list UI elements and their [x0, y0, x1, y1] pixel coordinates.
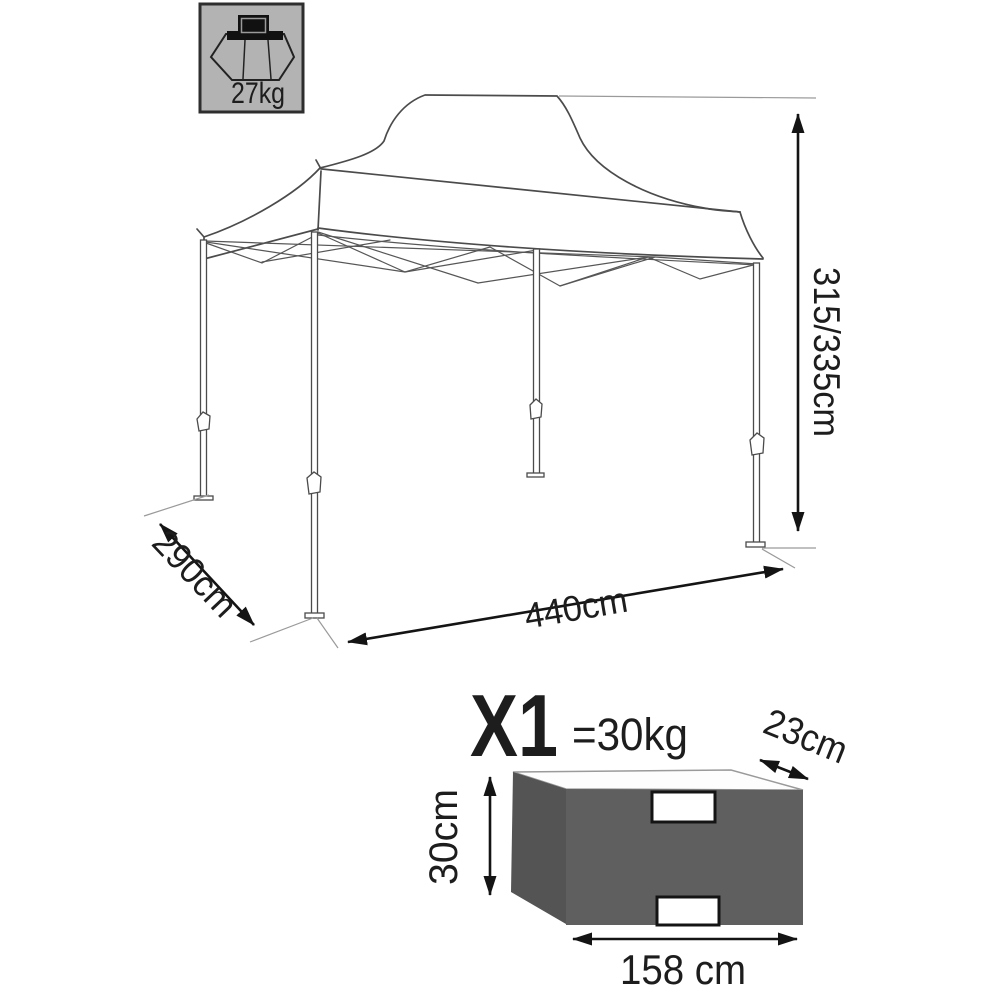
gazebo-leg-back-middle: [527, 249, 544, 477]
product-dimension-diagram: 27kg: [0, 0, 1000, 1000]
gazebo-width-dimension: 440cm: [317, 549, 795, 648]
gazebo-depth-label: 290cm: [144, 522, 245, 626]
package-height-label: 30cm: [422, 789, 466, 885]
box-bottom-handle: [657, 897, 719, 925]
box-side-face: [511, 772, 566, 924]
gazebo-leg-front-left: [305, 232, 324, 618]
package-width-label: 158 cm: [620, 946, 746, 993]
package-weight-label: =30kg: [572, 709, 688, 760]
gazebo-truss-frame: [205, 232, 757, 286]
package-box: [511, 770, 803, 925]
box-top-handle: [652, 792, 715, 822]
gazebo-height-label: 315/335cm: [806, 267, 847, 437]
gazebo-height-dimension: 315/335cm: [559, 96, 847, 548]
diagram-canvas: 27kg: [0, 0, 1000, 1000]
gazebo-leg-front-right: [746, 263, 765, 547]
package-height-dimension: 30cm: [422, 777, 490, 895]
package-depth-label: 23cm: [758, 701, 853, 772]
gazebo-leg-back-left: [194, 240, 213, 500]
gazebo-width-label: 440cm: [521, 579, 630, 637]
badge-weight-label: 27kg: [231, 77, 285, 110]
package-width-dimension: 158 cm: [573, 939, 797, 993]
gazebo-canopy: [197, 95, 763, 259]
gazebo-legs: [194, 232, 765, 618]
package-quantity-label: X1: [470, 676, 558, 775]
package-depth-dimension: 23cm: [758, 701, 853, 779]
package-section: X1 =30kg 23cm 30cm 158 cm: [422, 676, 853, 993]
gazebo-drawing: [194, 95, 765, 618]
gazebo-depth-dimension: 290cm: [144, 495, 313, 642]
weight-badge: 27kg: [200, 4, 303, 112]
